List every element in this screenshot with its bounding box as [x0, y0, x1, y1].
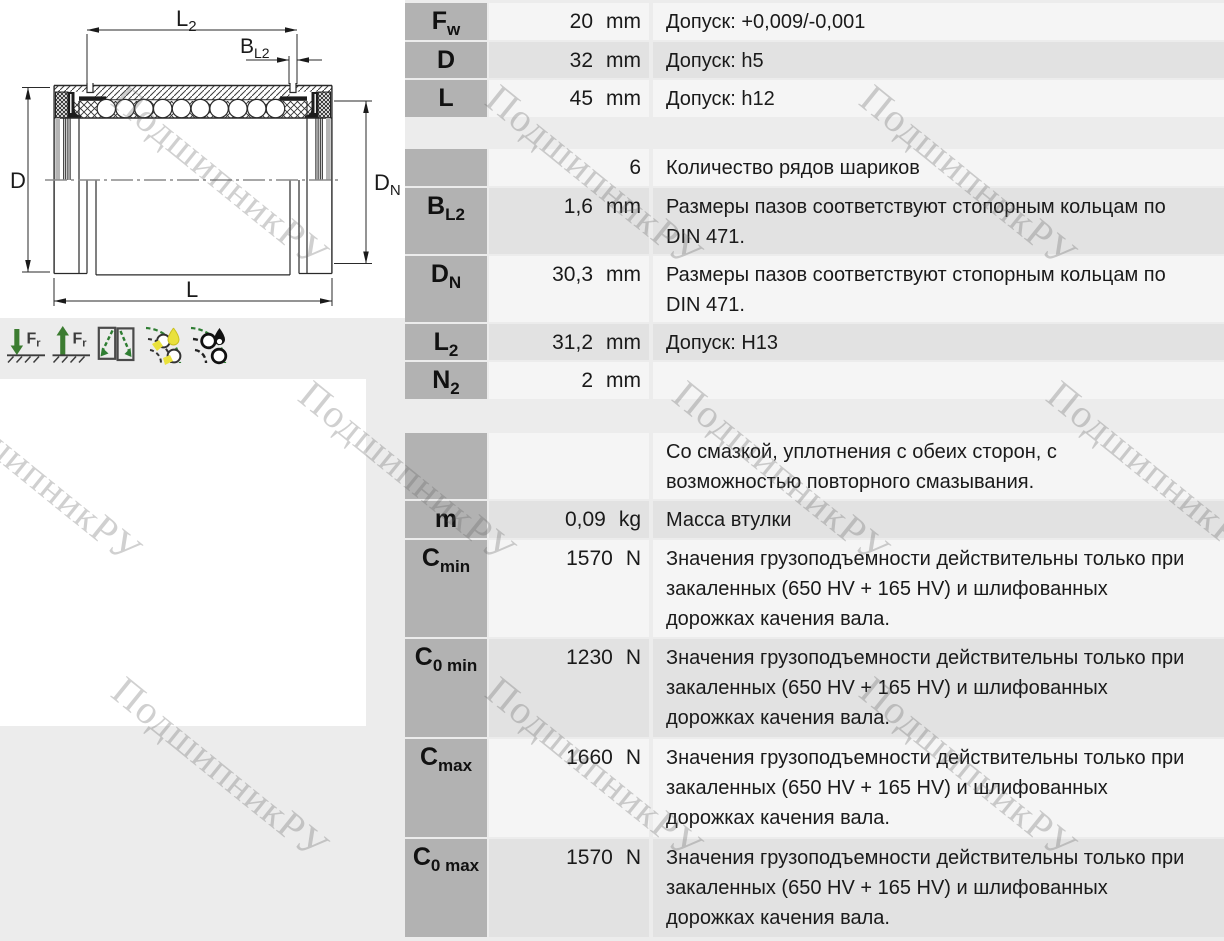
svg-text:DN: DN: [374, 170, 401, 199]
svg-text:L2: L2: [176, 6, 197, 35]
svg-text:D: D: [10, 168, 26, 193]
svg-text:Fr: Fr: [27, 331, 42, 350]
svg-text:Fr: Fr: [73, 331, 88, 350]
svg-text:BL2: BL2: [240, 35, 270, 61]
svg-text:L: L: [186, 277, 198, 302]
